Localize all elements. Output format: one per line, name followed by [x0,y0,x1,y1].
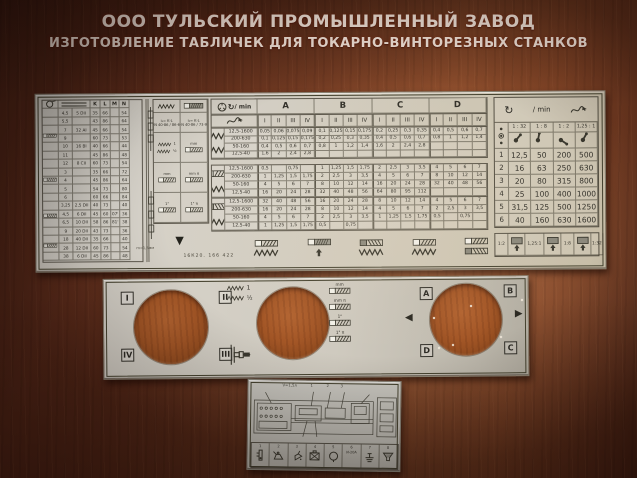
photo-of-lathe-plates: ООО ТУЛЬСКИЙ ПРОМЫШЛЕННЫЙ ЗАВОД ИЗГОТОВЛ… [0,0,637,478]
pitch-icon-cell [43,219,59,228]
subcol-header: III [286,115,300,127]
pitch-icon-cell [43,109,59,118]
value-cell: 14 [358,206,372,214]
pitch-cell: 36 [120,227,130,235]
thread-type-icon-pair [304,237,334,256]
pitch-cell: 72 [120,168,130,176]
pitch-icon-cell [43,252,59,261]
value-cell: 2,5 [330,214,344,222]
lubrication-plate: V=1,5л 1 2 3 123456И-20А78 [246,379,401,472]
pitch-cell: 60 [91,193,101,201]
level-icon [255,449,265,461]
value-cell: 0,06 [272,128,286,136]
value-cell [272,165,286,173]
pitch-cell: 45 [91,126,101,134]
pitch-cell [111,201,120,209]
value-cell: 12 [344,206,358,214]
value-cell: 6 [401,172,415,180]
value-cell: 0,5 [258,165,272,173]
value-cell: 1 [373,214,387,222]
pitch-cell: 28 [59,244,73,253]
legend-ratio: 1,25:1 [525,234,544,256]
value-cell: 7 [415,172,429,180]
value-cell: 10 [444,172,458,180]
pitch-cell [111,117,120,125]
pitch-icon-cell [43,143,59,152]
speed-table-header: ↻ / min [494,97,597,123]
corner-label-ii: II [219,291,232,304]
speed-value: 250 [553,161,575,174]
value-cell [373,222,387,230]
thread-unit-item: mm π [329,298,351,311]
corner-label-iii: III [219,348,232,361]
value-cell: 0,25 [386,128,400,136]
value-cell: 1,25 [387,214,401,222]
group-header: A [257,99,314,114]
value-cell: 4 [430,197,444,205]
pitch-cell: 86 [101,252,111,260]
pitch-cell: 64 [120,176,130,184]
value-cell: 0,5 [387,135,401,143]
pitch-cell: 54 [120,159,130,167]
value-cell [358,150,372,158]
value-cell: 2,5 [387,165,401,173]
spring-icon [157,147,171,154]
gear-formula-2: i₂= K·LL·N 40·86 / 73·96 [181,113,208,133]
thread-block-icon [185,175,203,183]
pitch-header-smudge [59,100,91,109]
speed-value: 400 [554,187,576,200]
subcol-header: IV [358,115,372,127]
pitch-cell: 64 [120,117,130,125]
value-cell: 1 [444,135,458,143]
pitch-cell [111,227,120,235]
value-cell: 4 [373,206,387,214]
value-cell [444,221,458,229]
thread-block-icon [158,175,176,183]
spindle-speed-table: ↻ / min 1 : 321 : 81 : 21,25 : 1112,5502… [493,96,599,228]
pitch-cell: 10 DII [73,219,91,228]
speed-value: 63 [531,162,553,175]
pitch-cell: 86 [101,218,111,226]
value-cell: 1 [258,173,272,181]
spring-icon [409,248,439,255]
legend-lever-icon [508,234,525,256]
value-cell: 0,7 [301,143,315,151]
lever-icon [531,133,553,149]
value-cell [330,222,344,230]
lubricant-cell: 8 [379,445,398,469]
circle-thread-icon [43,176,57,184]
thread-unit-item: mm [329,282,351,295]
lubricant-legend-row: 123456И-20А78 [250,442,398,470]
corner-label-iv: IV [121,349,134,362]
value-cell: 4 [258,181,272,189]
value-cell: 28 [301,206,315,214]
pitch-cell: 36 [120,210,130,218]
grid-section-feeds: 12,5-16000,050,060,0750,090,10,1250,150,… [211,127,488,160]
value-cell: 3 [344,173,358,181]
pitch-cell: 54 [120,125,130,133]
pitch-cell [111,142,120,150]
feed-label: ½ [173,149,177,153]
value-cell: 0,5 [444,127,458,135]
lubrication-diagram [251,388,400,442]
value-cell: 32 [315,189,329,197]
pitch-cell: 6 DII [73,210,91,219]
value-cell: 0,125 [329,128,343,136]
value-cell: 7 [301,214,315,222]
paint-speck [470,305,472,307]
pitch-cell: 2,5 DII [73,202,91,211]
pitch-cell: 8 CII [73,159,91,168]
pitch-cell: 38 [120,218,130,226]
feed-label: 1 [174,142,176,146]
legend-lever-icon [574,233,591,255]
plate-model-number: 16К20. 166 422 [183,254,234,259]
value-cell: 2 [372,165,386,173]
value-cell: 0,25 [329,135,343,143]
value-cell [444,213,458,221]
pitch-icon-cell [43,202,59,211]
pitch-cell: 6 DII [73,252,91,261]
value-cell [472,142,486,150]
pitch-cell: 54 [120,244,130,252]
pitch-cell [111,185,120,193]
value-cell: 0,4 [429,127,443,135]
lever-icon [553,132,575,148]
speed-position: 4 [495,188,509,201]
mid-header-row [153,100,207,113]
lubricant-cell: 3 [288,444,307,468]
value-cell: 28 [415,180,429,188]
paint-speck [500,336,502,338]
subcol-header: II [329,115,343,127]
value-cell [430,150,444,158]
thread-unit-item: 1" [329,314,351,327]
value-cell: 0,5 [430,213,444,221]
ratio-legend: 1:21,25:11:81:32 [494,232,599,257]
feed-rpm-icon [153,100,180,113]
value-cell: 0,75 [287,165,301,173]
thread-block-icon [329,303,351,311]
pitch-cell [73,176,91,185]
pitch-cell: 35 [91,235,101,243]
thread-unit-icons: mmmm π1"1" π [329,282,352,343]
legend-ratio: 1:2 [495,234,508,256]
value-cell: 16 [315,198,329,206]
thread-unit-item: 1" π [329,330,351,343]
value-cell: 1,25 [329,165,343,173]
value-cell: 0,2 [372,128,386,136]
legend-ratio: 1:32 [591,233,603,255]
pitch-cell: 66 [101,193,111,201]
value-cell: 14 [473,172,487,180]
value-cell: 0,09 [301,128,315,136]
lubricant-cell-number: 3 [296,445,298,449]
value-cell [329,150,343,158]
value-cell: 6 [458,164,472,172]
value-cell: 14 [358,181,372,189]
header-smudge [62,102,87,107]
value-cell: 1,2 [458,135,472,143]
value-cell: 20 [330,198,344,206]
metric-thread-icon: mm [181,133,208,163]
value-cell: 0,2 [315,135,329,143]
speed-position: 2 [495,162,509,175]
subcol-header: IV [301,115,315,127]
blockrev-icon [212,203,225,211]
lubricant-cell: 7 [361,445,380,469]
value-cell: 2 [387,143,401,151]
subcol-header: III [401,114,415,126]
pitch-icon-cell [43,117,59,126]
pitch-cell [111,109,120,117]
ratio-header: 1 : 2 [553,122,575,132]
value-cell: 4 [430,164,444,172]
arrow-right-icon: ▶ [515,308,523,319]
oilcan-tilt-icon [290,450,303,462]
pitch-cell: 9 [59,134,73,143]
subcol-header: II [444,114,458,126]
pitch-cell: 07' [111,210,120,218]
pitch-cell: 10 [59,143,73,152]
subcol-header: I [315,115,329,127]
value-cell: 10 [330,206,344,214]
speed-table-body: 1 : 321 : 81 : 21,25 : 1112,550200500216… [495,122,599,227]
pitch-cell: 40 [91,143,101,151]
pitch-note: m=1,5мм [136,246,154,250]
range-label: 50-160 [225,181,258,189]
value-cell: 0,75 [459,213,473,221]
ratio-header: 1 : 8 [531,123,553,133]
inch-thread-icon [43,132,57,140]
range-label: 200-630 [225,173,258,181]
value-cell: 2,8 [301,151,315,159]
value-cell: 0,5 [315,222,329,230]
fitting-icon [364,451,376,463]
pitch-cell [111,159,120,167]
pitch-cell [111,168,120,176]
spring-icon [251,249,281,256]
value-cell: 1,6 [258,151,272,159]
lubricant-cell-number: 8 [387,446,389,450]
value-cell: 80 [387,189,401,197]
value-cell: 0,3 [401,127,415,135]
thread-unit-row: 1"1" π [154,193,208,223]
value-cell: 3 [401,164,415,172]
spring-icon [212,219,225,226]
blockgray-icon [304,237,334,245]
value-cell [416,221,430,229]
thread-block-icon [329,287,351,295]
control-hole-1 [134,290,209,365]
pitch-cell: 45 [91,210,101,218]
feed-label-row: ½ [157,147,177,154]
value-cell: 3,5 [358,214,372,222]
value-cell: 12 [344,181,358,189]
value-cell [459,221,473,229]
pitch-cell: 43 [91,227,101,235]
pitch-cell: 86 [101,151,111,159]
value-cell: 2,4 [401,142,415,150]
thread-type-icon-pair [251,239,281,256]
thread-block-icon [185,205,203,213]
value-cell [473,221,487,229]
value-cell: 0,6 [286,143,300,151]
value-cell: 2 [315,214,329,222]
thread-unit-cell: mm [154,163,181,193]
paint-speck [433,317,435,319]
speed-value: 500 [554,200,576,213]
value-cell: 24 [401,180,415,188]
block-icon [212,170,225,178]
spring-icon [212,132,225,139]
speed-value: 800 [576,174,598,187]
thread-pitch-table: KLMN4,55 DII3566545,5438664732 AI4566549… [41,99,157,263]
pitch-icon-cell [43,185,59,194]
corner-label-c: C [504,341,517,354]
value-cell: 40 [444,180,458,188]
pitch-cell: 60 [101,210,111,218]
ratio-header: 1 : 32 [509,123,531,133]
group-header: D [429,98,486,113]
value-cell: 6 [401,205,415,213]
value-cell: 12 [458,172,472,180]
pitch-cell: 54 [91,185,101,193]
blockrev-icon [461,247,491,255]
springrev-icon [356,248,386,255]
value-cell: 7 [301,181,315,189]
pitch-cell: 4,5 [59,210,73,219]
lubricant-cell-number: 6 [350,445,352,449]
value-cell: 12 [401,197,415,205]
value-cell: 40 [330,189,344,197]
speed-value: 1600 [576,213,598,226]
formula-row: i₁= K·LL·N 40·86 / 86·64i₂= K·LL·N 40·86… [154,113,208,133]
thread-unit-cell: mm π [181,163,208,193]
value-cell: 8 [373,198,387,206]
pitch-cell: 53 [120,134,130,142]
oil-grade-label: И-20А [346,450,356,454]
value-cell: 1,4 [358,143,372,151]
value-cell: 56 [473,180,487,188]
thread-block-icon [158,205,176,213]
value-cell: 32 [430,180,444,188]
gear-formula-1: i₁= K·LL·N 40·86 / 86·64 [154,113,181,133]
value-cell: 20 [272,206,286,214]
value-cell: 5 [272,181,286,189]
speed-value: 25 [509,188,531,201]
paint-speck [521,299,523,301]
pitch-cell: 3 [59,168,73,177]
value-cell: 48 [344,189,358,197]
value-cell [344,150,358,158]
speed-value: 1000 [576,187,598,200]
legend-lever-icon [544,234,561,256]
thread-type-icon-pair [461,237,491,255]
pitch-icon-cell [43,227,59,236]
speed-value: 125 [531,201,553,214]
pitch-cell: 7 [59,126,73,135]
pitch-cell: 48 [120,252,130,260]
value-cell: 0,3 [344,135,358,143]
value-cell: 28 [301,189,315,197]
value-cell: 6 [458,197,472,205]
value-cell: 5 [444,197,458,205]
value-cell: 48 [287,198,301,206]
pitch-cell: 32 AI [73,126,91,135]
speed-value: 12,5 [509,149,531,162]
pitch-cell [73,117,91,126]
value-cell: 56 [301,198,315,206]
value-cell: 40 [272,198,286,206]
value-cell: 1,25 [272,173,286,181]
grid-section-threads-inverse: 12,5-1600324048561620242881012144567200-… [211,197,488,232]
pitch-cell [73,151,91,160]
speed-value: 80 [531,175,553,188]
pitch-col-header: M [110,100,119,108]
ratio-header: 1,25 : 1 [575,122,597,132]
pitch-cell: 40 [120,201,130,209]
value-cell [472,149,486,157]
value-cell [430,142,444,150]
thread-unit-row: mmmm π [154,163,208,193]
pitch-cell: 73 [101,159,111,167]
pitch-cell: 3,25 [59,202,73,211]
value-cell: 0,175 [301,136,315,144]
speed-value: 315 [553,174,575,187]
thread-block-icon [329,319,351,327]
pitch-cell: 45 [91,176,101,184]
group-header: C [372,98,429,113]
feed-select-label: ½ [247,295,253,302]
swirl-header-cell [212,115,258,127]
feed-swirl-icon [570,105,588,114]
value-cell: 4 [258,214,272,222]
value-cell: 0,15 [286,136,300,144]
speed-value: 1250 [576,200,598,213]
value-cell: 0,15 [344,128,358,136]
pitch-col-header: K [91,100,101,108]
value-cell [387,222,401,230]
ring-icon [327,450,339,462]
block-icon [251,239,281,247]
value-cell: 1,2 [344,143,358,151]
value-cell: 8 [430,172,444,180]
value-cell: 1,5 [287,222,301,230]
value-cell: 2,5 [444,205,458,213]
grid-section-threads-direct: 12,5-16000,50,7511,251,51,7522,533,54567… [211,163,488,199]
main-data-plate: KLMN4,55 DII3566545,5438664732 AI4566549… [34,90,606,272]
subcol-header: I [258,115,272,127]
rpm-icon: ↻ [504,103,513,116]
corner-label-b: B [504,284,517,297]
value-cell: 0,75 [344,222,358,230]
speed-position: 6 [495,214,509,227]
value-cell: 1,4 [472,134,486,142]
lubricant-cell-number: 1 [259,444,261,448]
speed-value: 31,5 [509,201,531,214]
value-cell: 3,5 [415,164,429,172]
subcol-header: II [272,115,286,127]
pitch-cell: 11 [59,151,73,160]
pitch-cell: 54 [120,109,130,117]
rpm-unit-label: / min [533,106,551,114]
value-cell: 2 [272,151,286,159]
lubricant-cell: 6И-20А [343,444,362,468]
value-cell: 1,75 [358,165,372,173]
